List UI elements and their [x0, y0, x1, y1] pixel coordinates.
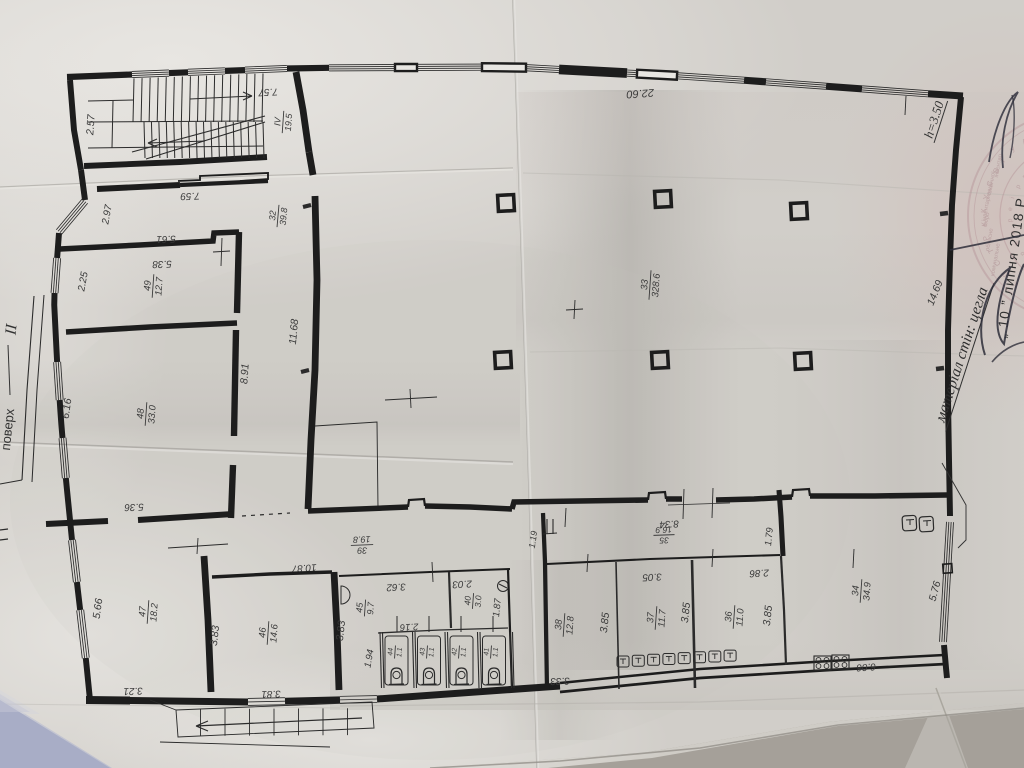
svg-text:11.0: 11.0 [734, 607, 746, 626]
svg-text:35: 35 [659, 535, 669, 545]
svg-text:7.57: 7.57 [258, 85, 278, 97]
svg-text:37: 37 [645, 611, 657, 623]
svg-text:8.91: 8.91 [238, 363, 251, 384]
svg-text:11.68: 11.68 [287, 318, 301, 345]
svg-text:5.36: 5.36 [124, 501, 144, 513]
svg-text:32: 32 [267, 210, 278, 221]
svg-text:3.83: 3.83 [334, 620, 348, 642]
svg-text:34: 34 [850, 585, 862, 596]
svg-text:36: 36 [723, 610, 735, 622]
svg-text:2.86: 2.86 [749, 566, 770, 578]
svg-text:22.60: 22.60 [625, 86, 655, 100]
svg-text:3.81: 3.81 [261, 688, 281, 700]
svg-text:3.85: 3.85 [761, 605, 775, 627]
svg-text:2.57: 2.57 [84, 113, 98, 136]
svg-text:39.8: 39.8 [278, 207, 289, 225]
svg-text:39: 39 [357, 545, 367, 555]
svg-text:3.85: 3.85 [598, 612, 612, 634]
svg-text:7.59: 7.59 [180, 190, 200, 202]
svg-text:46: 46 [257, 626, 269, 638]
svg-text:3.21: 3.21 [123, 685, 143, 697]
svg-text:5.61: 5.61 [156, 233, 176, 245]
svg-text:3.83: 3.83 [208, 625, 222, 647]
svg-text:328.6: 328.6 [650, 273, 663, 298]
svg-text:11.7: 11.7 [656, 608, 668, 627]
svg-text:18.2: 18.2 [148, 602, 160, 622]
svg-text:3.05: 3.05 [642, 570, 662, 582]
svg-text:6.06: 6.06 [856, 660, 877, 672]
svg-text:41: 41 [483, 647, 491, 655]
svg-text:48: 48 [135, 407, 147, 419]
svg-text:16.9: 16.9 [655, 525, 672, 536]
svg-text:1.79: 1.79 [763, 526, 776, 546]
svg-text:33: 33 [639, 278, 651, 290]
svg-text:49: 49 [142, 279, 154, 291]
svg-text:9.7: 9.7 [365, 601, 376, 615]
svg-text:19.5: 19.5 [283, 112, 294, 131]
svg-text:43: 43 [419, 647, 427, 655]
svg-text:1.1: 1.1 [428, 647, 436, 657]
svg-text:3.62: 3.62 [386, 580, 406, 592]
svg-text:33.0: 33.0 [146, 404, 158, 424]
svg-text:45: 45 [354, 601, 365, 613]
svg-text:19.8: 19.8 [353, 534, 371, 545]
svg-text:2.16: 2.16 [399, 620, 420, 632]
svg-text:2.03: 2.03 [452, 577, 473, 589]
svg-text:1.87: 1.87 [491, 597, 504, 617]
svg-text:40: 40 [462, 595, 473, 605]
svg-text:38: 38 [553, 618, 565, 630]
svg-text:1.1: 1.1 [396, 647, 404, 657]
svg-text:1.1: 1.1 [460, 647, 468, 657]
svg-text:34.9: 34.9 [861, 581, 873, 601]
svg-text:47: 47 [137, 605, 149, 617]
svg-text:42: 42 [451, 647, 459, 655]
svg-text:12.8: 12.8 [564, 615, 576, 635]
svg-text:3.85: 3.85 [679, 602, 693, 624]
svg-text:3.33: 3.33 [550, 675, 570, 687]
svg-text:3.0: 3.0 [473, 595, 484, 608]
svg-text:12.7: 12.7 [153, 276, 165, 296]
svg-text:14.6: 14.6 [268, 623, 280, 643]
svg-text:1.1: 1.1 [492, 647, 500, 657]
svg-text:5.38: 5.38 [152, 258, 172, 270]
svg-text:44: 44 [387, 647, 395, 655]
